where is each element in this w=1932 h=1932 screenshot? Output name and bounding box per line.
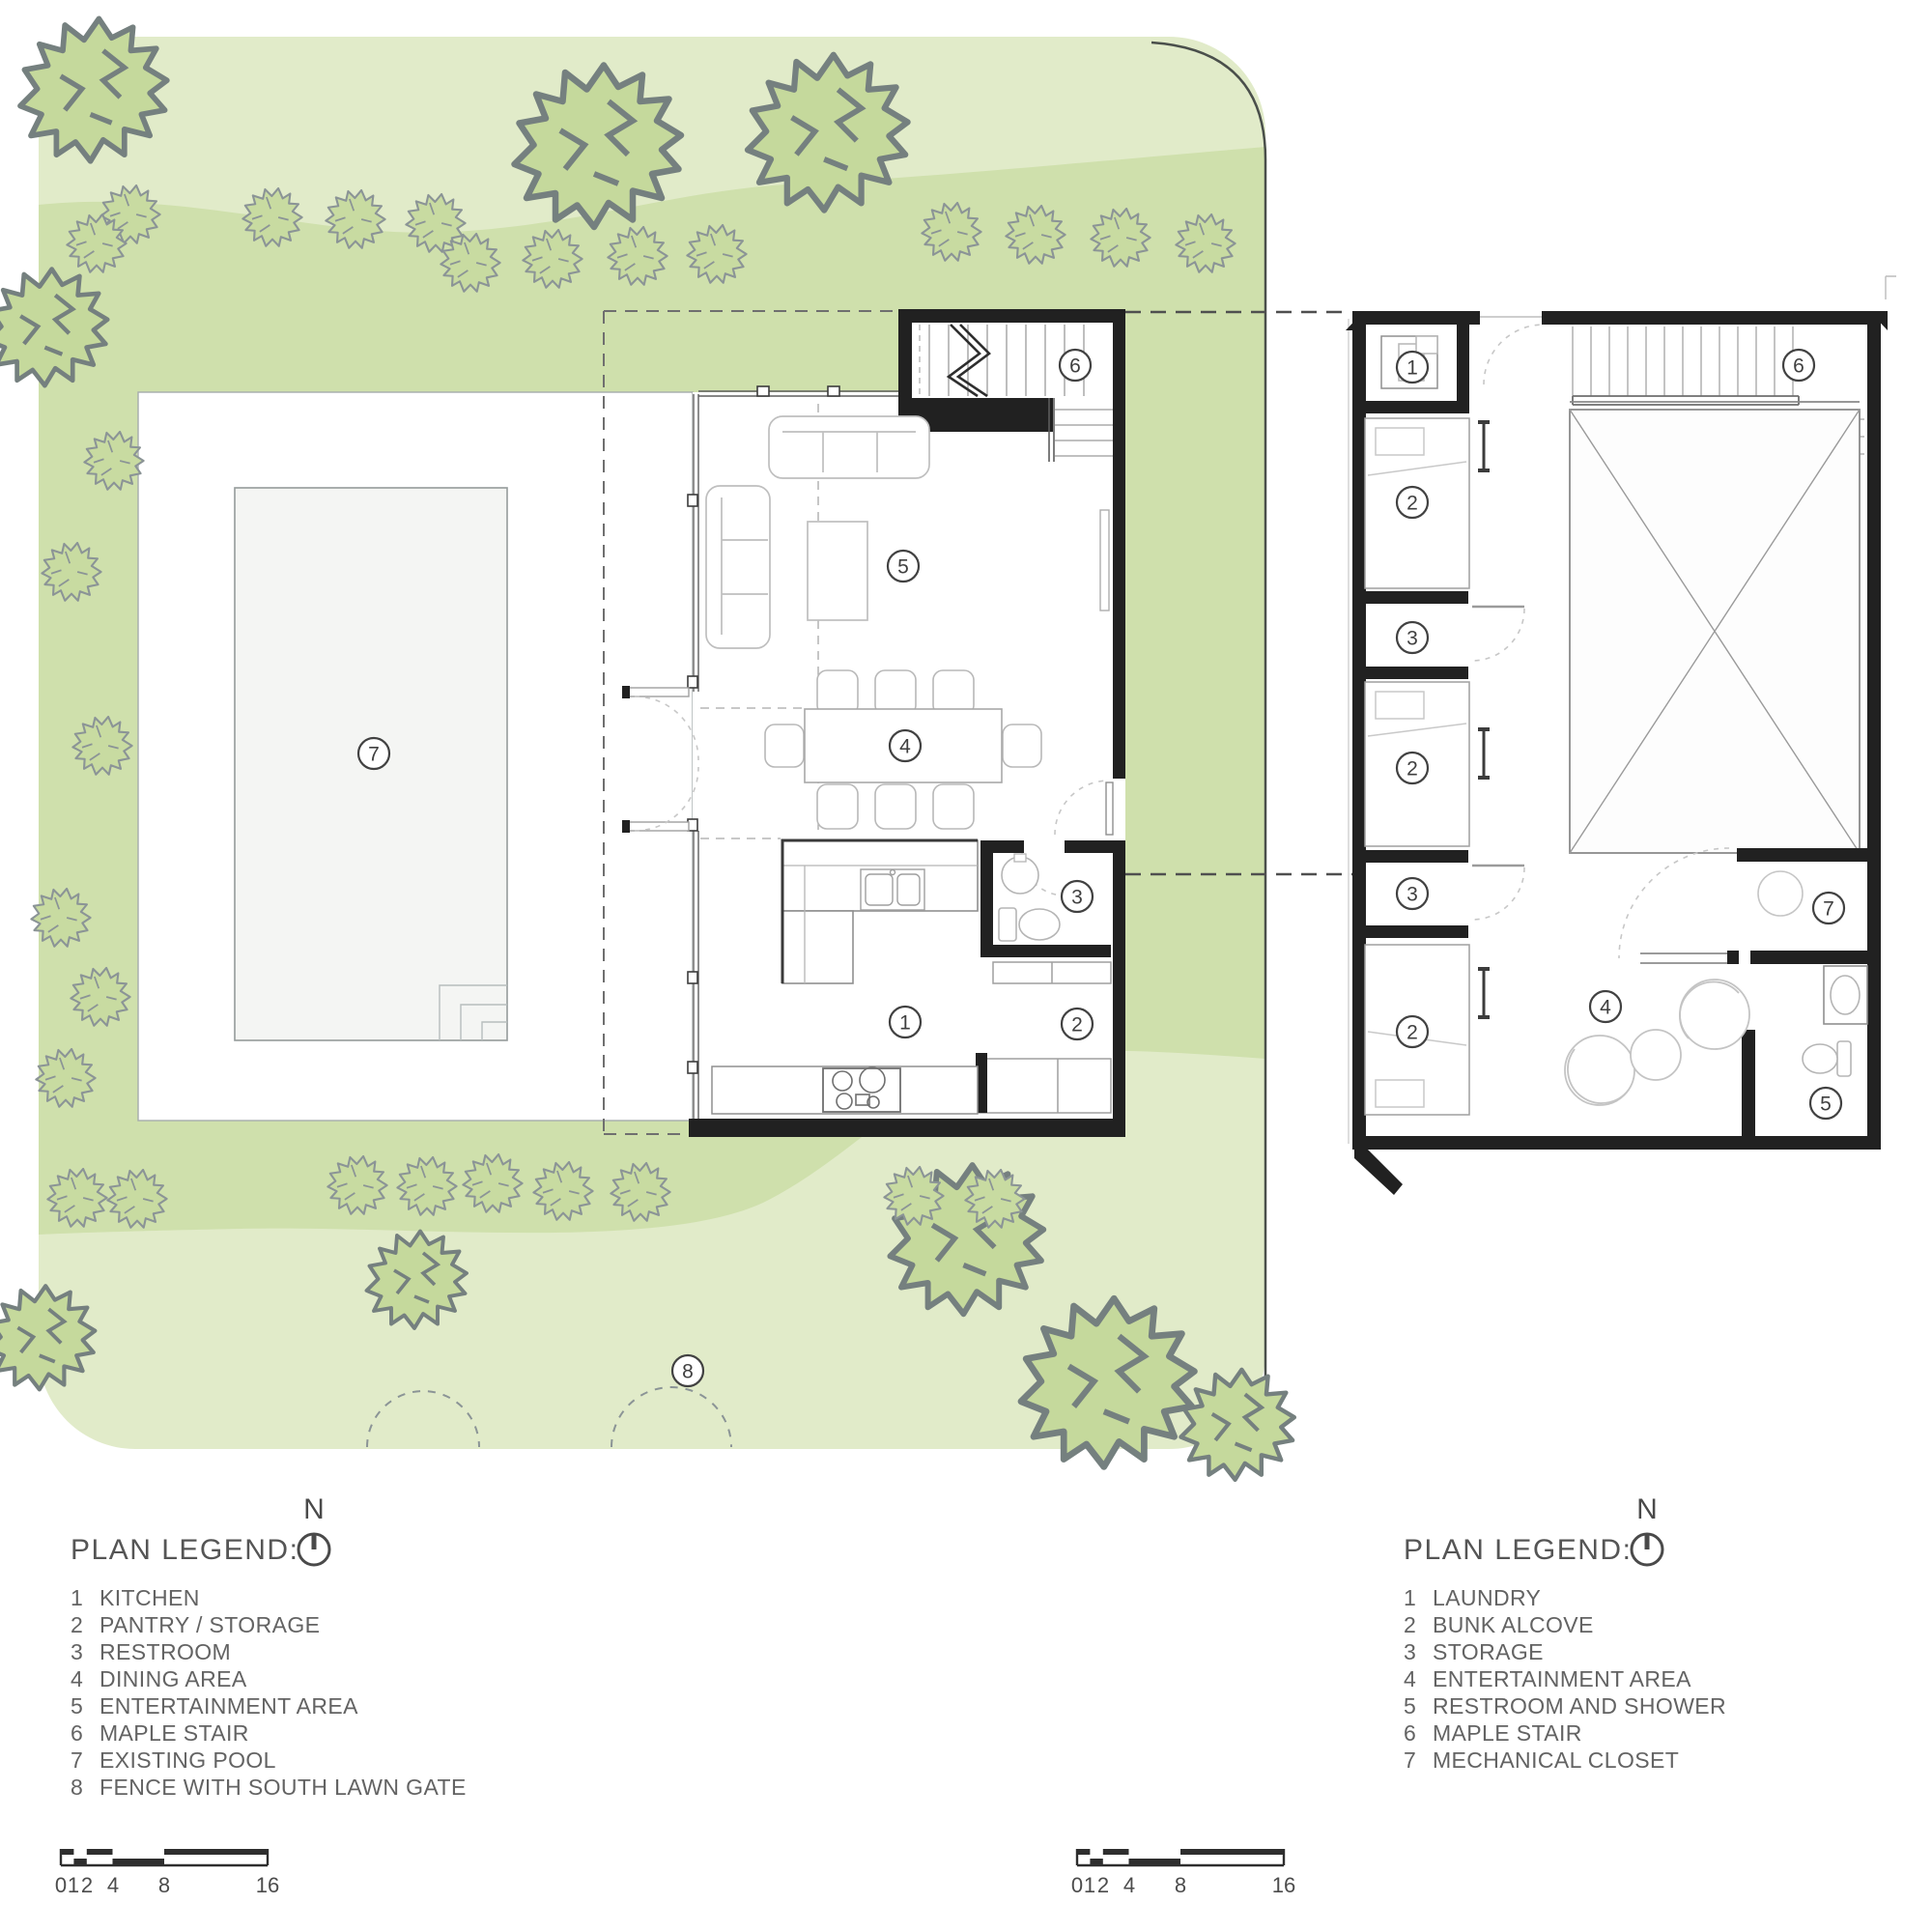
legend-item-number: 5 <box>71 1692 99 1719</box>
legend-item: 5ENTERTAINMENT AREA <box>71 1692 467 1719</box>
kitchen-sink <box>861 869 924 910</box>
scale-label: 2 <box>81 1873 93 1897</box>
floor1-legend-title: PLAN LEGEND: <box>71 1534 467 1567</box>
legend-item-label: RESTROOM <box>99 1638 231 1665</box>
water-heater <box>1758 871 1803 916</box>
room-marker-number: 7 <box>368 744 380 766</box>
lounge-chair <box>1680 980 1749 1049</box>
sofa <box>706 486 770 648</box>
dining-chair <box>875 670 916 715</box>
floor2-legend-items: 1LAUNDRY2BUNK ALCOVE3STORAGE4ENTERTAINME… <box>1404 1584 1726 1774</box>
legend-item-number: 2 <box>1404 1611 1433 1638</box>
legend-item: 5RESTROOM AND SHOWER <box>1404 1692 1726 1719</box>
legend-item-number: 1 <box>71 1584 99 1611</box>
room-marker-number: 3 <box>1406 884 1418 906</box>
legend-item-label: MECHANICAL CLOSET <box>1433 1747 1679 1774</box>
legend-item: 3STORAGE <box>1404 1638 1726 1665</box>
scale-label: 8 <box>158 1873 170 1897</box>
room-marker-number: 1 <box>1406 357 1418 380</box>
legend-item: 4ENTERTAINMENT AREA <box>1404 1665 1726 1692</box>
legend-item: 7MECHANICAL CLOSET <box>1404 1747 1726 1774</box>
room-marker-number: 3 <box>1406 628 1418 650</box>
legend-item-number: 8 <box>71 1774 99 1801</box>
floor2-scale-bar <box>1077 1849 1284 1865</box>
architectural-drawing-sheet: 12345678 1232324567 0124816 0124816 PLAN… <box>0 0 1932 1932</box>
floor1-scale-labels: 0124816 <box>55 1873 279 1897</box>
room-marker-number: 3 <box>1071 887 1083 909</box>
scale-label: 16 <box>256 1873 279 1897</box>
room-marker-number: 4 <box>1600 997 1611 1019</box>
legend-item: 6MAPLE STAIR <box>71 1719 467 1747</box>
legend-item-label: DINING AREA <box>99 1665 247 1692</box>
sofa <box>769 416 929 478</box>
room-marker-number: 8 <box>682 1361 694 1383</box>
scale-label: 1 <box>1084 1873 1095 1897</box>
floor1-legend: PLAN LEGEND: 1KITCHEN2PANTRY / STORAGE3R… <box>71 1534 467 1801</box>
basin <box>1831 976 1860 1014</box>
legend-item-number: 7 <box>71 1747 99 1774</box>
legend-item: 1LAUNDRY <box>1404 1584 1726 1611</box>
scale-label: 4 <box>1123 1873 1135 1897</box>
legend-item: 2BUNK ALCOVE <box>1404 1611 1726 1638</box>
east-wall <box>1113 309 1125 1137</box>
room-marker-number: 2 <box>1406 758 1418 781</box>
floor2-scale-labels: 0124816 <box>1071 1873 1295 1897</box>
legend-item-label: PANTRY / STORAGE <box>99 1611 320 1638</box>
f2-stair-stub <box>1354 1150 1403 1195</box>
kitchen-counter <box>712 1066 978 1114</box>
dining-chair <box>765 724 804 767</box>
room-marker-number: 2 <box>1071 1014 1083 1037</box>
east-wall-window <box>1100 510 1109 611</box>
dining-chair <box>933 670 974 715</box>
toilet <box>999 908 1060 941</box>
legend-item: 2PANTRY / STORAGE <box>71 1611 467 1638</box>
faucet <box>1014 854 1026 862</box>
room-marker-number: 6 <box>1069 355 1081 378</box>
room-marker-number: 2 <box>1406 493 1418 515</box>
legend-item-label: EXISTING POOL <box>99 1747 276 1774</box>
dining-chair <box>1003 724 1041 767</box>
legend-item-number: 3 <box>1404 1638 1433 1665</box>
room-marker-number: 5 <box>897 556 909 579</box>
legend-item-number: 2 <box>71 1611 99 1638</box>
legend-item: 7EXISTING POOL <box>71 1747 467 1774</box>
coffee-table <box>808 522 867 620</box>
scale-label: 2 <box>1097 1873 1109 1897</box>
room-marker-number: 7 <box>1823 898 1834 921</box>
dining-chair <box>817 784 858 829</box>
legend-item-number: 4 <box>71 1665 99 1692</box>
legend-item: 6MAPLE STAIR <box>1404 1719 1726 1747</box>
legend-item-number: 6 <box>71 1719 99 1747</box>
legend-item-label: ENTERTAINMENT AREA <box>99 1692 358 1719</box>
bathroom-sink <box>1002 857 1038 894</box>
room-marker-number: 5 <box>1820 1094 1832 1116</box>
toilet-bowl <box>1803 1044 1837 1073</box>
floor1-scale-bar <box>61 1849 268 1865</box>
legend-item-label: STORAGE <box>1433 1638 1544 1665</box>
legend-item-label: BUNK ALCOVE <box>1433 1611 1594 1638</box>
f2-right-wall <box>1867 311 1881 1150</box>
legend-item-number: 6 <box>1404 1719 1433 1747</box>
legend-item-number: 4 <box>1404 1665 1433 1692</box>
floor1-north-arrow: N <box>290 1486 348 1575</box>
legend-item-label: MAPLE STAIR <box>1433 1719 1582 1747</box>
scale-label: 0 <box>1071 1873 1083 1897</box>
legend-item-number: 5 <box>1404 1692 1433 1719</box>
room-marker-number: 6 <box>1793 355 1804 378</box>
legend-item-number: 1 <box>1404 1584 1433 1611</box>
scale-label: 16 <box>1272 1873 1295 1897</box>
ottoman <box>1631 1030 1681 1080</box>
legend-item: 4DINING AREA <box>71 1665 467 1692</box>
dining-chair <box>875 784 916 829</box>
scale-label: 8 <box>1175 1873 1186 1897</box>
f2-bottom-wall <box>1352 1136 1881 1150</box>
legend-item-number: 3 <box>71 1638 99 1665</box>
pool-deck <box>138 392 693 1121</box>
legend-item-label: KITCHEN <box>99 1584 200 1611</box>
legend-item-label: MAPLE STAIR <box>99 1719 249 1747</box>
f2-top-wall <box>1352 311 1881 325</box>
legend-item-label: FENCE WITH SOUTH LAWN GATE <box>99 1774 467 1801</box>
legend-item-number: 7 <box>1404 1747 1433 1774</box>
floor1-legend-items: 1KITCHEN2PANTRY / STORAGE3RESTROOM4DININ… <box>71 1584 467 1801</box>
legend-item: 8FENCE WITH SOUTH LAWN GATE <box>71 1774 467 1801</box>
room-marker-number: 4 <box>899 736 911 758</box>
floor2-north-arrow: N <box>1623 1486 1681 1575</box>
scale-label: 4 <box>107 1873 119 1897</box>
north-label: N <box>1636 1493 1658 1525</box>
legend-item-label: LAUNDRY <box>1433 1584 1541 1611</box>
floor2-building <box>1346 309 1888 1195</box>
void-open-to-below <box>1570 402 1860 853</box>
scale-label: 0 <box>55 1873 67 1897</box>
room-marker-number: 2 <box>1406 1022 1418 1044</box>
south-wall <box>689 1119 1125 1137</box>
legend-item-label: ENTERTAINMENT AREA <box>1433 1665 1691 1692</box>
scale-label: 1 <box>68 1873 79 1897</box>
toilet-tank <box>1837 1041 1851 1076</box>
dining-chair <box>817 670 858 715</box>
legend-item: 3RESTROOM <box>71 1638 467 1665</box>
dining-chair <box>933 784 974 829</box>
room-marker-number: 1 <box>899 1012 911 1035</box>
legend-item: 1KITCHEN <box>71 1584 467 1611</box>
f2-left-wall <box>1352 311 1366 1150</box>
north-label: N <box>303 1493 325 1525</box>
legend-item-label: RESTROOM AND SHOWER <box>1433 1692 1726 1719</box>
